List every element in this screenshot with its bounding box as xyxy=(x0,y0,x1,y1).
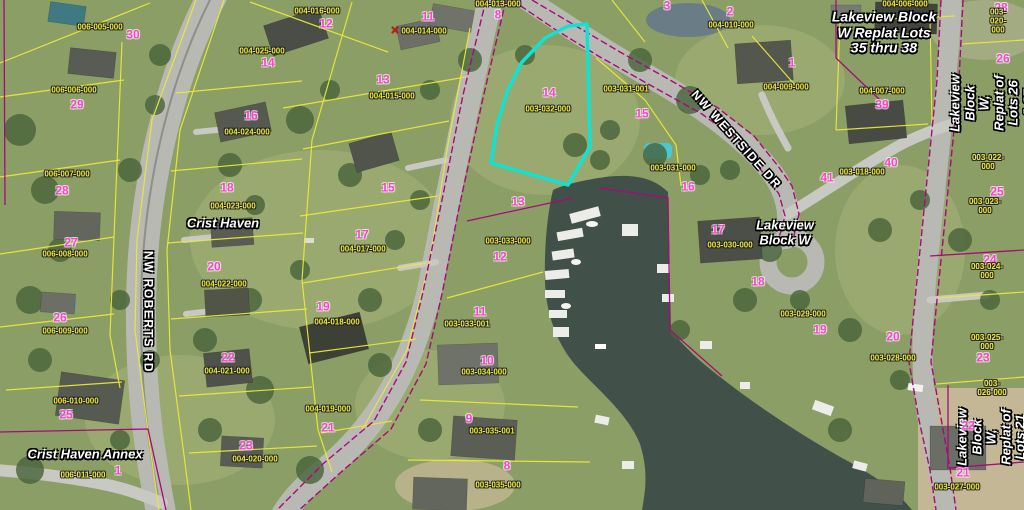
pond xyxy=(646,3,730,37)
vehicle xyxy=(595,344,606,349)
map-canvas[interactable]: NW ROBERTS RDNW WESTSIDE DRCrist HavenCr… xyxy=(0,0,1024,510)
